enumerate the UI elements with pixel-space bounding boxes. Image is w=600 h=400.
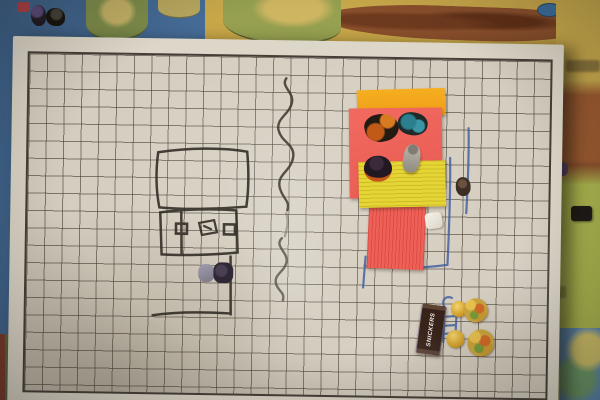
tabletop-game-photo: SNICKERS [0,0,600,400]
drawn-room-upper [156,148,249,210]
miniature-dark [456,177,471,196]
miniature-dark-orange-base [364,156,392,182]
drawn-center-symbol [199,220,217,235]
miniature-dark-pair [213,262,233,283]
miniature-gray [198,264,214,282]
miniature-on-map [31,5,46,26]
drawn-river-upper [277,78,295,210]
map-red-marking [17,2,30,12]
drawn-river-faded [285,213,288,236]
drawn-door-right [224,224,235,234]
blue-room-left-wall [363,257,365,288]
snickers-label: SNICKERS [426,312,437,347]
sticky-note-red-vertical [367,202,427,270]
map-island [158,0,200,18]
blue-room-right-wall [447,158,450,265]
drawn-room-lower [160,209,239,256]
drawn-river-lower [275,238,287,300]
map-label-smudge [566,60,600,72]
blue-outer-wall [466,128,469,213]
battle-mat-board: SNICKERS [7,36,564,400]
miniature-on-map [46,8,65,26]
map-island [86,0,148,40]
map-corner-art [560,328,600,400]
drawn-corridor-horizontal [153,312,230,317]
white-token [424,212,443,230]
black-die-on-map [571,206,592,221]
